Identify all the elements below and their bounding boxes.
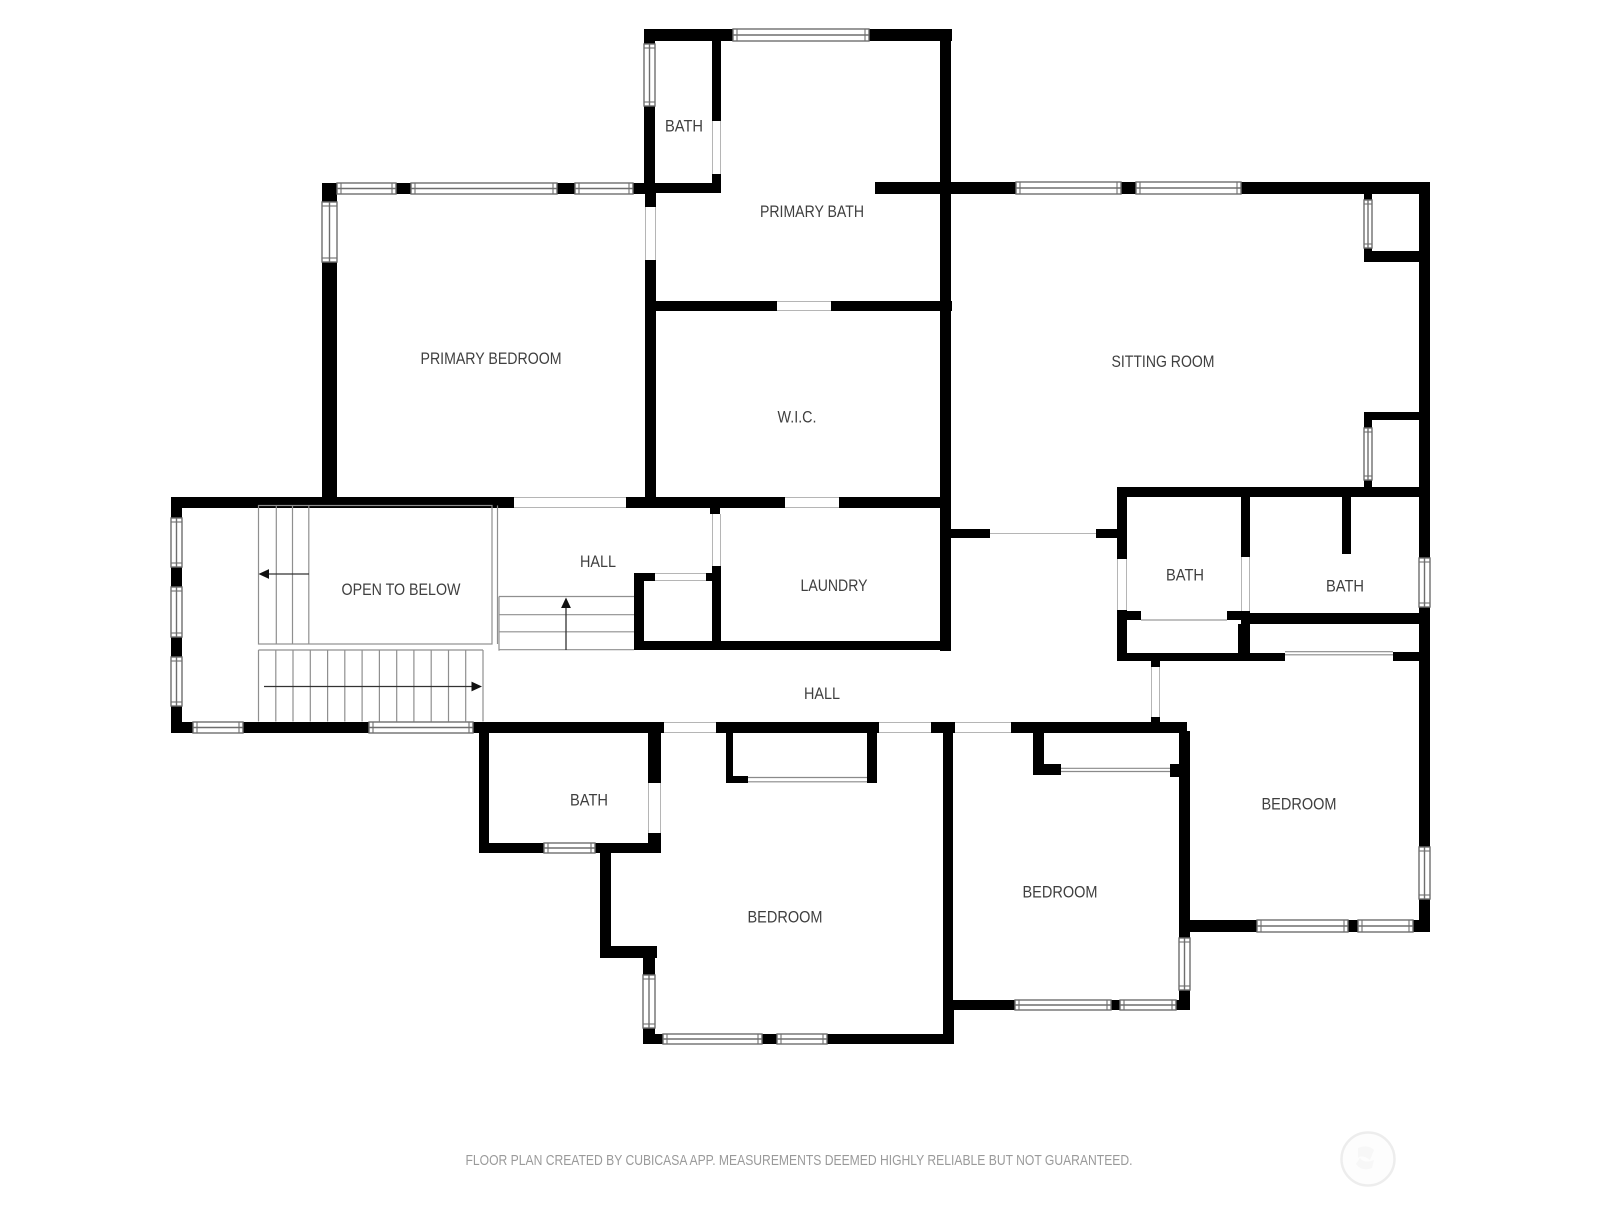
svg-text:BATH: BATH — [570, 791, 608, 810]
svg-text:OPEN TO BELOW: OPEN TO BELOW — [342, 580, 461, 599]
svg-text:BEDROOM: BEDROOM — [1023, 883, 1098, 902]
svg-text:SITTING ROOM: SITTING ROOM — [1112, 352, 1215, 371]
svg-text:HALL: HALL — [580, 552, 616, 571]
svg-text:BATH: BATH — [1166, 566, 1204, 585]
svg-text:BEDROOM: BEDROOM — [748, 908, 823, 927]
svg-text:BATH: BATH — [1326, 577, 1364, 596]
svg-text:BEDROOM: BEDROOM — [1262, 795, 1337, 814]
svg-text:HALL: HALL — [804, 684, 840, 703]
svg-text:W.I.C.: W.I.C. — [778, 408, 817, 427]
svg-text:PRIMARY BEDROOM: PRIMARY BEDROOM — [421, 349, 562, 368]
svg-text:BATH: BATH — [665, 117, 703, 136]
svg-text:LAUNDRY: LAUNDRY — [801, 576, 868, 595]
svg-text:FLOOR PLAN CREATED BY CUBICASA: FLOOR PLAN CREATED BY CUBICASA APP. MEAS… — [466, 1152, 1133, 1169]
svg-text:PRIMARY BATH: PRIMARY BATH — [760, 202, 864, 221]
